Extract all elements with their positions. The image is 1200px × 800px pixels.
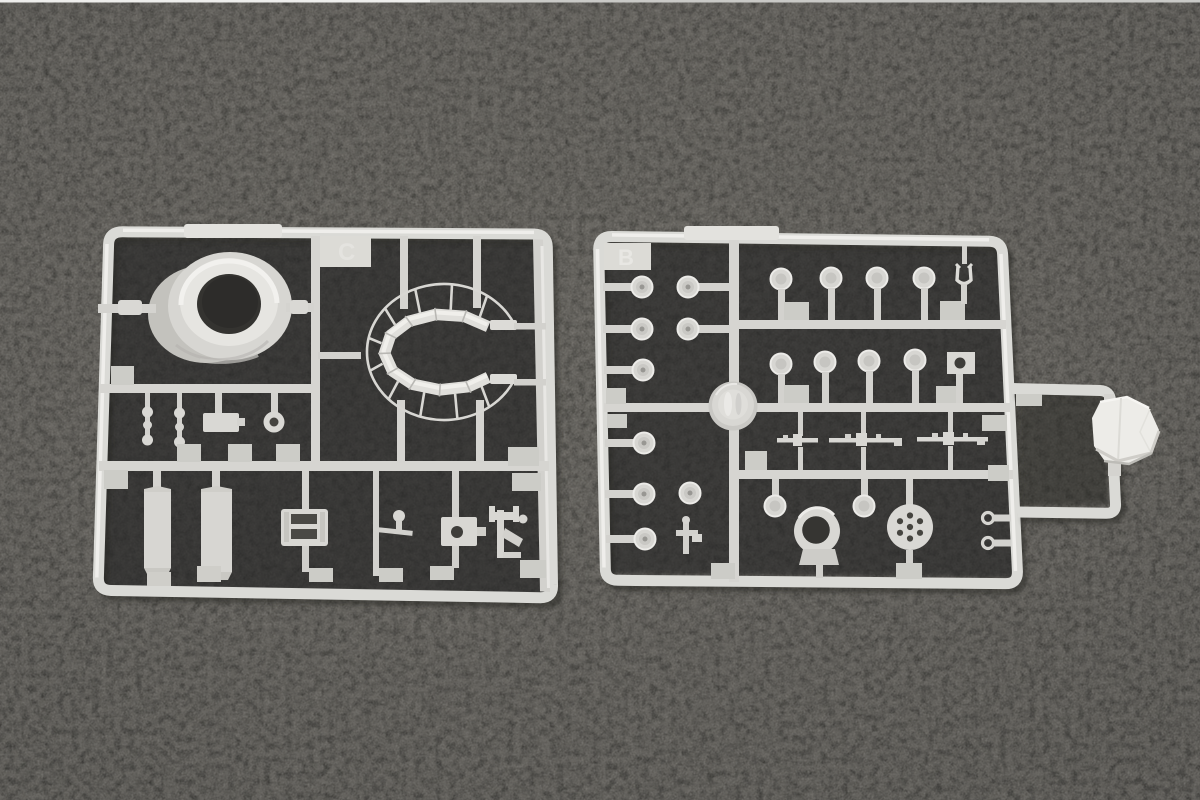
svg-text:C: C — [338, 239, 355, 266]
svg-text:B: B — [618, 245, 634, 270]
